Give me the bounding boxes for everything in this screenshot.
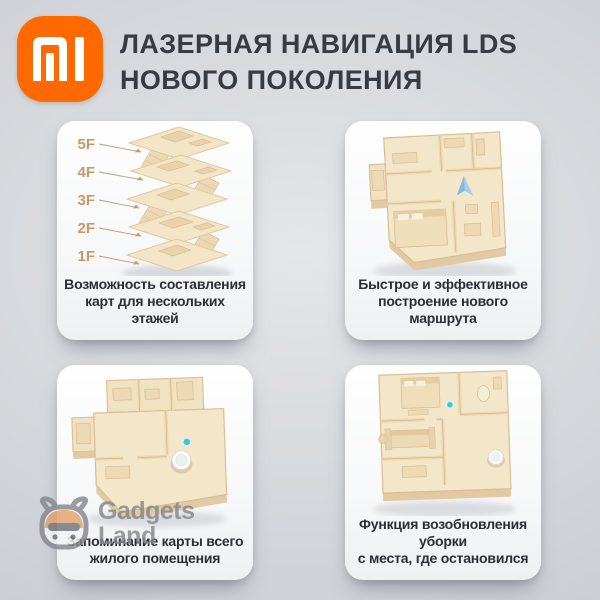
feature-card-new-route: Быстрое и эффективное построение нового …: [345, 121, 541, 340]
page-title-line1: ЛАЗЕРНАЯ НАВИГАЦИЯ LDS: [120, 26, 580, 62]
xiaomi-logo: [17, 16, 103, 102]
charge-dot-icon: [183, 438, 191, 446]
page-title-line2: НОВОГО ПОКОЛЕНИЯ: [120, 62, 580, 98]
resume-cleaning-illustration: [345, 365, 541, 516]
floor-label-2f: 2F: [77, 220, 95, 237]
feature-card-multifloor: 5F 4F 3F 2F 1F Возможность составления к…: [57, 121, 253, 340]
resume-dot-icon: [446, 401, 453, 408]
mi-logo-icon: [29, 31, 91, 87]
caption-line1: Запоминание карты всего: [67, 533, 244, 550]
feature-card-map-memory: Запоминание карты всего жилого помещения: [57, 365, 253, 580]
page-background: ЛАЗЕРНАЯ НАВИГАЦИЯ LDS НОВОГО ПОКОЛЕНИЯ: [0, 0, 600, 600]
new-route-illustration: [345, 121, 541, 276]
multi-floor-map-icon: 5F 4F 3F 2F 1F: [57, 121, 253, 276]
caption-line2: с места, где остановился: [349, 550, 537, 567]
feature-card-resume-cleaning: Функция возобновления уборки с места, гд…: [345, 365, 541, 580]
multi-floor-illustration: 5F 4F 3F 2F 1F: [57, 121, 253, 276]
caption-line1: Функция возобновления уборки: [349, 516, 537, 550]
resume-floorplan-icon: [345, 365, 541, 516]
caption-line1: Быстрое и эффективное: [349, 276, 537, 293]
floor-label-1f: 1F: [77, 248, 95, 265]
page-title: ЛАЗЕРНАЯ НАВИГАЦИЯ LDS НОВОГО ПОКОЛЕНИЯ: [120, 26, 580, 98]
floor-label-4f: 4F: [77, 164, 95, 181]
caption-line2: построение нового маршрута: [349, 293, 537, 327]
caption-line1: Возможность составления: [61, 276, 249, 293]
card-caption: Быстрое и эффективное построение нового …: [349, 276, 537, 327]
card-caption: Возможность составления карт для несколь…: [61, 276, 249, 327]
memory-floorplan-icon: [57, 365, 253, 533]
map-memory-illustration: [57, 365, 253, 533]
route-floorplan-icon: [345, 121, 541, 276]
floor-label-3f: 3F: [77, 192, 95, 209]
caption-line2: жилого помещения: [67, 550, 244, 567]
floor-label-5f: 5F: [77, 136, 95, 153]
card-caption: Запоминание карты всего жилого помещения: [67, 533, 244, 567]
caption-line2: карт для нескольких этажей: [61, 293, 249, 327]
card-caption: Функция возобновления уборки с места, гд…: [349, 516, 537, 567]
